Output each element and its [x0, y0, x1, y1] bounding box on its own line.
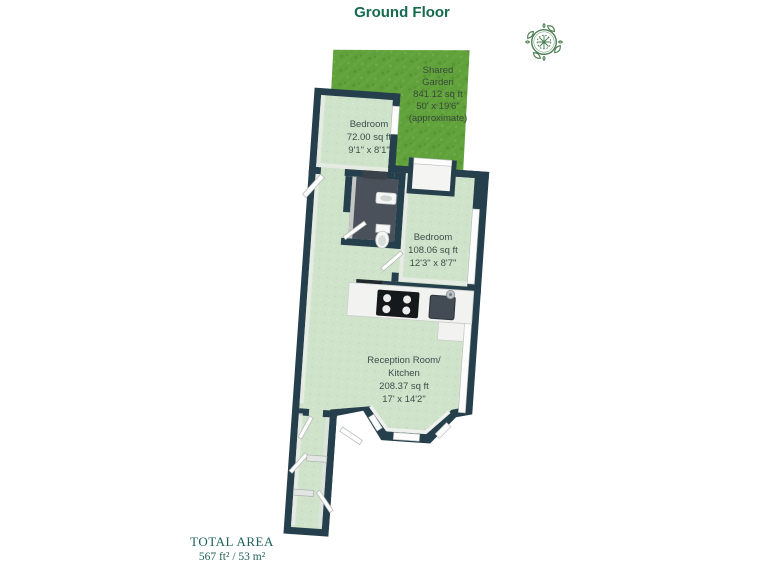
svg-text:(approximate): (approximate)	[409, 113, 468, 124]
svg-text:Kitchen: Kitchen	[388, 368, 420, 379]
total-area: TOTAL AREA 567 ft² / 53 m²	[162, 534, 302, 563]
svg-text:50' x 19'6": 50' x 19'6"	[416, 101, 459, 112]
cooktop-icon	[376, 289, 420, 318]
svg-text:9'1" x 8'1": 9'1" x 8'1"	[348, 145, 390, 156]
svg-text:Reception Room/: Reception Room/	[367, 355, 441, 366]
total-area-label: TOTAL AREA	[162, 534, 302, 550]
svg-text:Garden: Garden	[422, 77, 454, 88]
svg-text:Bedroom: Bedroom	[414, 232, 453, 243]
floorplan-page: Ground Floor	[0, 0, 768, 576]
bedroom1-label: Bedroom 72.00 sq ft 9'1" x 8'1"	[347, 119, 392, 156]
svg-text:Bedroom: Bedroom	[350, 119, 389, 130]
svg-text:72.00 sq ft: 72.00 sq ft	[347, 132, 392, 143]
svg-text:108.06 sq ft: 108.06 sq ft	[408, 245, 458, 256]
svg-text:Shared: Shared	[423, 65, 454, 76]
bathroom-doorway	[362, 170, 386, 180]
svg-text:208.37 sq ft: 208.37 sq ft	[379, 381, 429, 392]
garden-alcove-window	[406, 157, 456, 196]
total-area-value: 567 ft² / 53 m²	[162, 551, 302, 563]
svg-text:12'3" x 8'7": 12'3" x 8'7"	[410, 258, 457, 269]
svg-text:17' x 14'2": 17' x 14'2"	[382, 394, 425, 405]
floorplan-canvas: Shared Garden 841.12 sq ft 50' x 19'6" (…	[0, 0, 768, 576]
bedroom2-label: Bedroom 108.06 sq ft 12'3" x 8'7"	[408, 232, 458, 269]
svg-text:841.12 sq ft: 841.12 sq ft	[413, 89, 463, 100]
front-door	[340, 427, 363, 445]
